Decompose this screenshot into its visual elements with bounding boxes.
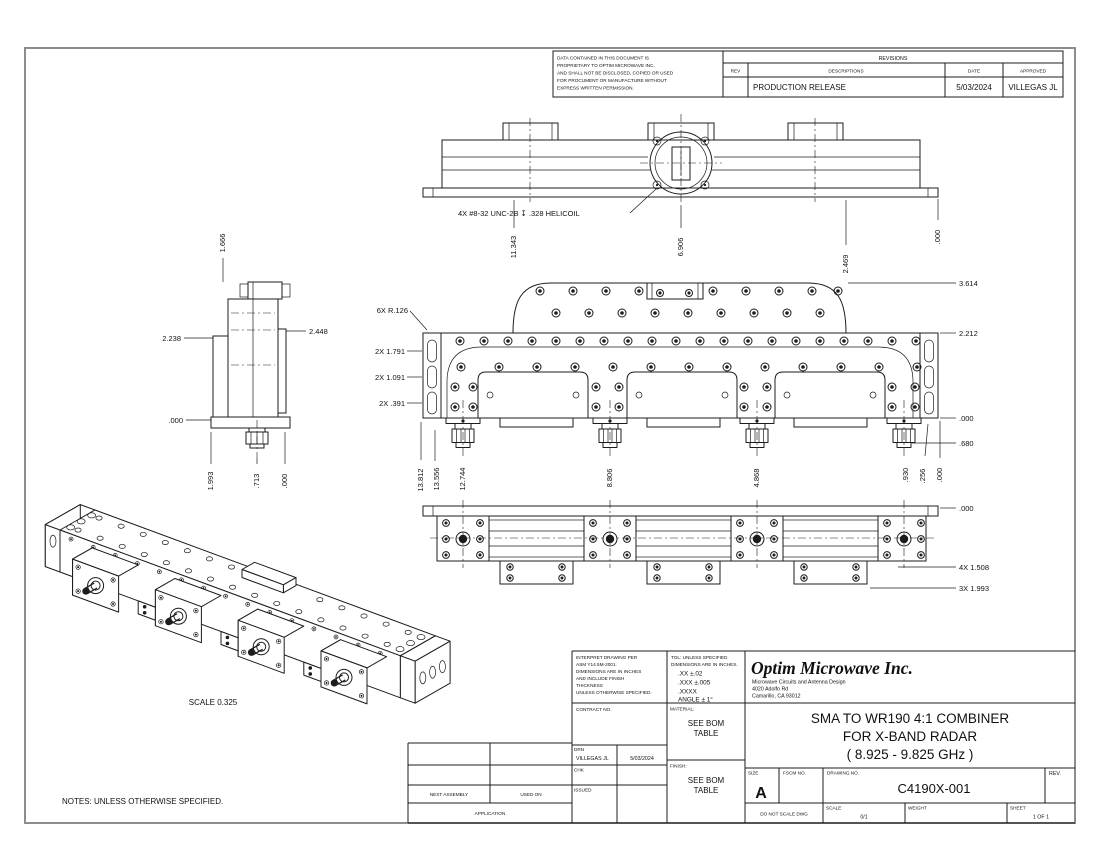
height-dim: .000 [959,504,974,513]
drawing-sheet: DATA CONTAINED IN THIS DOCUMENT IS PROPR… [0,0,1100,850]
slot-dim: 2X 1.091 [375,373,405,382]
used-on-label: USED ON [520,792,541,797]
radius-dim: 6X R.126 [377,306,408,315]
side-sma-connector [246,420,268,458]
revision-description-cell: PRODUCTION RELEASE [753,83,846,92]
station-dim: 13.812 [416,469,425,492]
interpret-line: INTERPRET DRAWING PER [576,655,638,660]
front-view-screws [451,287,921,411]
revision-date-cell: 5/03/2024 [956,83,992,92]
descriptions-col-header: DESCRIPTIONS [828,69,863,74]
station-dim: 1.993 [206,472,215,491]
cavity-windows [478,372,885,418]
notes-text: NOTES: UNLESS OTHERWISE SPECIFIED. [62,797,223,806]
height-dim: 2.238 [162,334,181,343]
company-block: Optim Microwave Inc. Microwave Circuits … [751,658,913,700]
tolerance-line: DIMENSIONS ARE IN INCHES. [671,662,738,667]
company-tagline: Microwave Circuits and Antenna Design [752,680,846,686]
size-value: A [755,785,767,802]
height-dim: 4X 1.508 [959,563,989,572]
title-line: FOR X-BAND RADAR [843,729,978,744]
side-view-dims: 1.666 2.238 2.448 .000 1.993 .713 .000 [162,234,328,491]
front-view-left-dims: 6X R.126 2X 1.791 2X 1.091 2X .391 [375,306,427,408]
mounting-slots [428,340,934,414]
proprietary-line: DATA CONTAINED IN THIS DOCUMENT IS [557,56,649,61]
finish-value: SEE BOM [688,776,725,785]
slot-dim: 2X 1.791 [375,347,405,356]
waveguide-channels [489,520,878,557]
application-block: NEXT ASSEMBLY USED ON APPLICATION [408,743,572,823]
front-view-bottom-dims: 13.812 13.556 12.744 8.806 4.868 .930 .2… [416,421,944,491]
interpret-line: ASM Y14.5M-2001. [576,662,617,667]
tolerance-line: .XX ±.02 [678,671,703,678]
title-line: SMA TO WR190 4:1 COMBINER [811,711,1010,726]
tolerance-line: TOL: UNLESS SPECIFIED [671,655,728,660]
proprietary-line: AND SHALL NOT BE DISCLOSED, COPIED OR US… [557,71,674,76]
approved-col-header: APPROVED [1020,69,1047,74]
tolerance-note: TOL: UNLESS SPECIFIED DIMENSIONS ARE IN … [671,655,738,704]
station-dim: 13.556 [432,468,441,491]
bottom-view-dims: .000 4X 1.508 3X 1.993 [870,504,989,593]
station-dim: .713 [252,474,261,489]
material-label: MATERIAL: [670,707,694,712]
rev-col-header: REV [731,69,742,74]
material-value: TABLE [694,729,719,738]
height-dim: 3.614 [959,279,978,288]
height-dim: 2.212 [959,329,978,338]
sheet-border [25,48,1075,823]
do-not-scale-label: DO NOT SCALE DWG [760,812,808,817]
material-value: SEE BOM [688,719,725,728]
drawing-title: SMA TO WR190 4:1 COMBINER FOR X-BAND RAD… [811,711,1010,762]
proprietary-line: FOR PROCUMENT OR MANUFACTURE WITHOUT [557,78,667,83]
side-view: 1.666 2.238 2.448 .000 1.993 .713 .000 [162,234,328,491]
height-dim: 3X 1.993 [959,584,989,593]
issued-label: ISSUED [574,788,592,793]
hump-outline [513,283,846,333]
revisions-title: REVISIONS [879,56,908,62]
weight-label: WEIGHT [908,806,927,811]
station-dim: .000 [935,468,944,483]
title-line: ( 8.925 - 9.825 GHz ) [847,747,974,762]
date-col-header: DATE [968,69,980,74]
proprietary-note: DATA CONTAINED IN THIS DOCUMENT IS PROPR… [553,51,723,97]
height-dim: .000 [168,416,183,425]
proprietary-line: EXPRESS WRITTEN PERMISSION. [557,86,634,91]
station-dim: 1.666 [218,234,227,253]
interpret-note: INTERPRET DRAWING PER ASM Y14.5M-2001. D… [576,655,652,695]
drawing-no-value: C4190X-001 [898,781,971,796]
station-dim: 2.469 [841,255,850,274]
helicoil-note: 4X #8-32 UNC-2B ↧ .328 HELICOIL [458,209,580,218]
rev-label: REV. [1049,771,1061,777]
bottom-view-screws [443,520,925,582]
interpret-line: THICKNESS [576,683,603,688]
scale-label: SCALE [826,806,841,811]
station-dim: 12.744 [458,468,467,491]
front-view: 6X R.126 2X 1.791 2X 1.091 2X .391 3.614… [375,279,978,491]
bottom-feet-tabs [500,418,867,427]
station-dim: .930 [901,468,910,483]
scale-value: 0/1 [860,815,867,821]
bottom-view: .000 4X 1.508 3X 1.993 [423,500,989,593]
station-dim: .256 [918,469,927,484]
chk-label: CHK [574,768,585,773]
isometric-geometry [45,505,450,704]
tolerance-line: .XXXX [678,689,698,696]
company-address2: Camarillo, CA 93012 [752,694,801,700]
interpret-line: AND INCLUDE FINISH [576,676,624,681]
station-dim: .000 [280,474,289,489]
interpret-line: UNLESS OTHERWISE SPECIFIED. [576,690,652,695]
isometric-view: SCALE 0.325 [45,505,450,707]
drn-date: 5/03/2024 [630,756,654,762]
sheet-value: 1 OF 1 [1033,815,1049,821]
size-label: SIZE [748,771,758,776]
height-dim: .000 [959,414,974,423]
drn-label: DRN [574,747,584,752]
slot-dim: 2X .391 [379,399,405,408]
drawing-no-label: DRAWING NO. [827,771,859,776]
engineering-drawing: DATA CONTAINED IN THIS DOCUMENT IS PROPR… [0,0,1100,850]
station-dim: 11.343 [509,236,518,258]
revisions-table: REVISIONS REV DESCRIPTIONS DATE APPROVED… [723,51,1063,97]
proprietary-line: PROPRIETARY TO OPTIM MICROWAVE INC. [557,63,655,68]
height-dim: .680 [959,439,974,448]
company-address1: 4020 Adolfo Rd [752,687,788,693]
revision-approved-cell: VILLEGAS JL [1008,83,1058,92]
next-assembly-label: NEXT ASSEMBLY [430,792,469,797]
fscm-label: FSCM NO. [783,771,806,776]
tolerance-line: ANGLE ± 1° [678,696,713,704]
drn-name: VILLEGAS JL [576,756,609,762]
finish-value: TABLE [694,786,719,795]
title-block: INTERPRET DRAWING PER ASM Y14.5M-2001. D… [408,651,1075,823]
iso-scale-label: SCALE 0.325 [189,698,238,707]
company-name: Optim Microwave Inc. [751,658,913,678]
station-dim: 6.906 [676,238,685,257]
bottom-tabs [500,561,867,584]
station-dim: .000 [933,230,942,245]
sma-connectors [446,400,921,458]
sheet-label: SHEET [1010,806,1026,811]
station-dim: 4.868 [752,469,761,488]
height-dim: 2.448 [309,327,328,336]
finish-label: FINISH: [670,764,687,769]
tolerance-line: .XXX ±.005 [678,680,711,687]
contract-no-label: CONTRACT NO. [576,707,612,712]
station-dim: 8.806 [605,469,614,488]
top-view: 4X #8-32 UNC-2B ↧ .328 HELICOIL 11.343 6… [423,114,942,273]
application-label: APPLICATION [475,811,506,816]
interpret-line: DIMENSIONS ARE IN INCHES [576,669,641,674]
